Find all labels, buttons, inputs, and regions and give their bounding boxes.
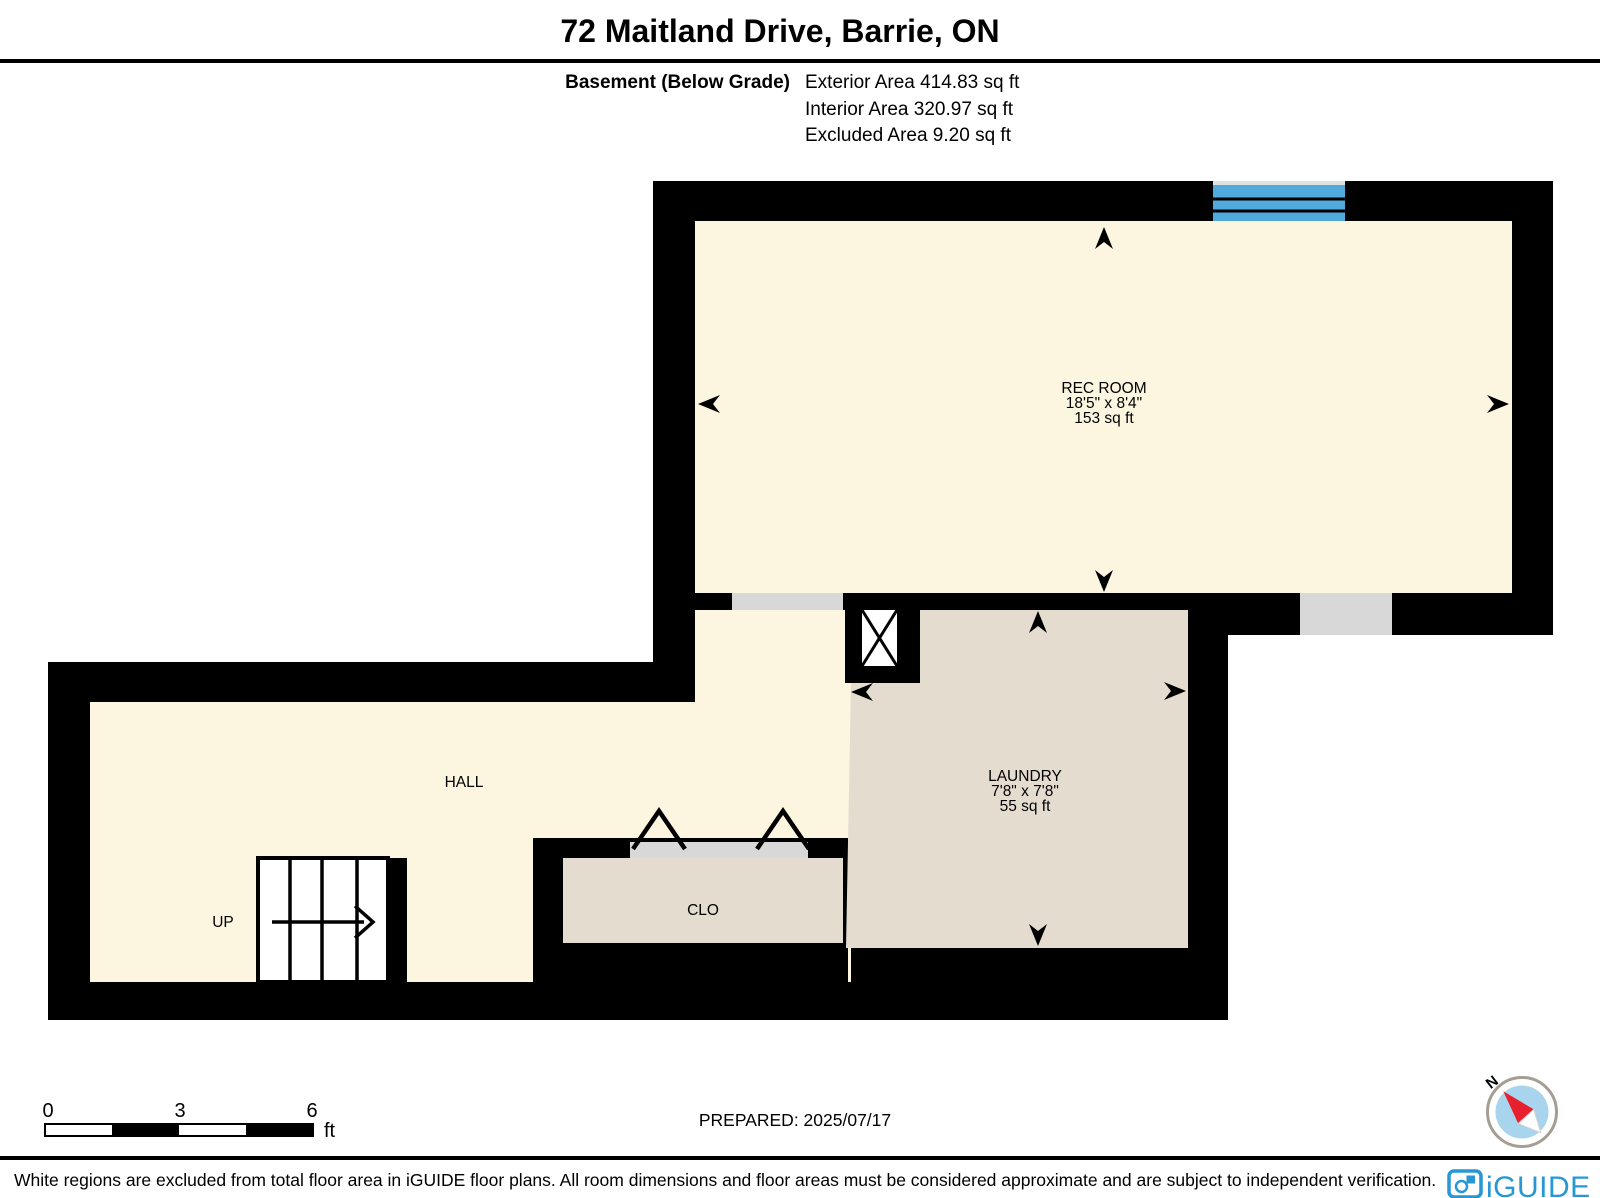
- scale-tick-3: 3: [174, 1100, 185, 1122]
- scale-bar-segment: [112, 1124, 179, 1136]
- exterior-area-label: Exterior Area 414.83 sq ft: [805, 72, 1020, 93]
- stairs-up-label: UP: [212, 914, 234, 931]
- hall-name: HALL: [445, 774, 484, 791]
- compass: N: [1483, 1072, 1557, 1146]
- floor-plan-page: 72 Maitland Drive, Barrie, ON Basement (…: [0, 0, 1600, 1198]
- closet-floor: [563, 858, 843, 943]
- footer-divider: [0, 1156, 1600, 1160]
- closet-door-track: [630, 842, 808, 858]
- iguide-brand-text: iGUIDE: [1486, 1171, 1591, 1198]
- floor-label: Basement (Below Grade): [565, 72, 790, 93]
- stair-side-wall: [388, 858, 407, 1020]
- iguide-logo: iGUIDE: [1449, 1171, 1591, 1198]
- rec-room-area: 153 sq ft: [1074, 410, 1134, 427]
- iguide-icon-lens: [1456, 1181, 1467, 1192]
- iguide-camera-icon: [1449, 1171, 1481, 1197]
- hall-extension-floor: [695, 610, 851, 702]
- page-title: 72 Maitland Drive, Barrie, ON: [560, 13, 999, 49]
- scale-bar-segment: [246, 1124, 313, 1136]
- excluded-area-label: Excluded Area 9.20 sq ft: [805, 125, 1012, 146]
- header-divider: [0, 59, 1600, 63]
- footer-disclaimer: White regions are excluded from total fl…: [14, 1170, 1436, 1190]
- scale-unit: ft: [324, 1120, 336, 1142]
- window: [1213, 181, 1345, 221]
- window-glass: [1213, 185, 1345, 221]
- prepared-date: PREPARED: 2025/07/17: [699, 1110, 891, 1130]
- door-opening-rec-exit: [1300, 593, 1392, 635]
- scale-tick-6: 6: [306, 1100, 317, 1122]
- footer: White regions are excluded from total fl…: [0, 1156, 1600, 1198]
- floor-plan: REC ROOM 18'5" x 8'4" 153 sq ft LAUNDRY …: [48, 181, 1553, 1020]
- header: 72 Maitland Drive, Barrie, ON Basement (…: [0, 13, 1600, 146]
- laundry-area: 55 sq ft: [1000, 798, 1052, 815]
- scale-tick-0: 0: [42, 1100, 53, 1122]
- scale-bar: 0 3 6 ft: [42, 1100, 335, 1142]
- wall-connector-right: [1188, 635, 1228, 662]
- iguide-icon-flash: [1467, 1176, 1476, 1184]
- wall-connector-left: [653, 635, 695, 662]
- closet-name: CLO: [687, 902, 719, 919]
- door-opening-rec-hall: [732, 593, 843, 610]
- window-outer-line: [1213, 181, 1345, 185]
- interior-area-label: Interior Area 320.97 sq ft: [805, 99, 1014, 120]
- chase-box: [845, 593, 920, 683]
